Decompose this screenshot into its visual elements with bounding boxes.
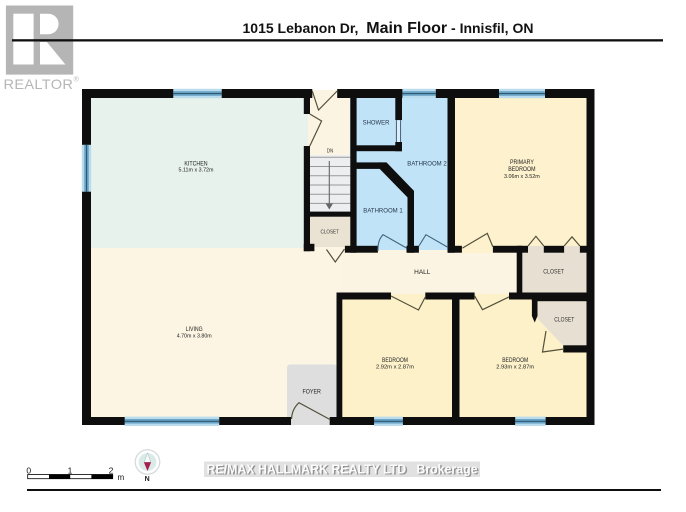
svg-text:1015 Lebanon Dr, Main Floor -: 1015 Lebanon Dr, Main Floor - Innisfil, …: [243, 20, 534, 37]
svg-text:®: ®: [74, 76, 80, 84]
svg-text:0: 0: [26, 466, 31, 476]
svg-text:CLOSET: CLOSET: [321, 230, 340, 236]
svg-text:3.06m x 3.52m: 3.06m x 3.52m: [504, 174, 540, 180]
svg-text:DN: DN: [327, 149, 334, 155]
svg-text:2.92m x 2.87m: 2.92m x 2.87m: [376, 364, 414, 370]
svg-text:5.11m x 3.72m: 5.11m x 3.72m: [179, 167, 214, 173]
svg-text:2.93m x 2.87m: 2.93m x 2.87m: [496, 364, 534, 370]
svg-text:CLOSET: CLOSET: [554, 317, 574, 323]
svg-text:BEDROOM: BEDROOM: [508, 166, 535, 173]
svg-text:LIVING: LIVING: [186, 326, 203, 333]
svg-text:RE/MAX HALLMARK REALTY LTD B: RE/MAX HALLMARK REALTY LTD Brokerage: [207, 461, 478, 476]
svg-text:KITCHEN: KITCHEN: [184, 160, 208, 167]
svg-text:m: m: [118, 473, 125, 482]
svg-text:REALTOR: REALTOR: [4, 77, 74, 92]
svg-text:CLOSET: CLOSET: [543, 269, 564, 275]
svg-text:HALL: HALL: [414, 269, 431, 276]
svg-text:1: 1: [68, 466, 73, 476]
svg-text:2: 2: [109, 466, 114, 476]
svg-text:SHOWER: SHOWER: [363, 119, 390, 126]
svg-text:BEDROOM: BEDROOM: [382, 357, 408, 364]
svg-text:BATHROOM 1: BATHROOM 1: [363, 208, 403, 215]
svg-text:N: N: [145, 476, 150, 483]
svg-text:BATHROOM 2: BATHROOM 2: [407, 161, 447, 168]
svg-text:FOYER: FOYER: [302, 389, 321, 396]
svg-text:4.70m x 3.80m: 4.70m x 3.80m: [177, 334, 212, 340]
svg-text:BEDROOM: BEDROOM: [502, 357, 528, 364]
